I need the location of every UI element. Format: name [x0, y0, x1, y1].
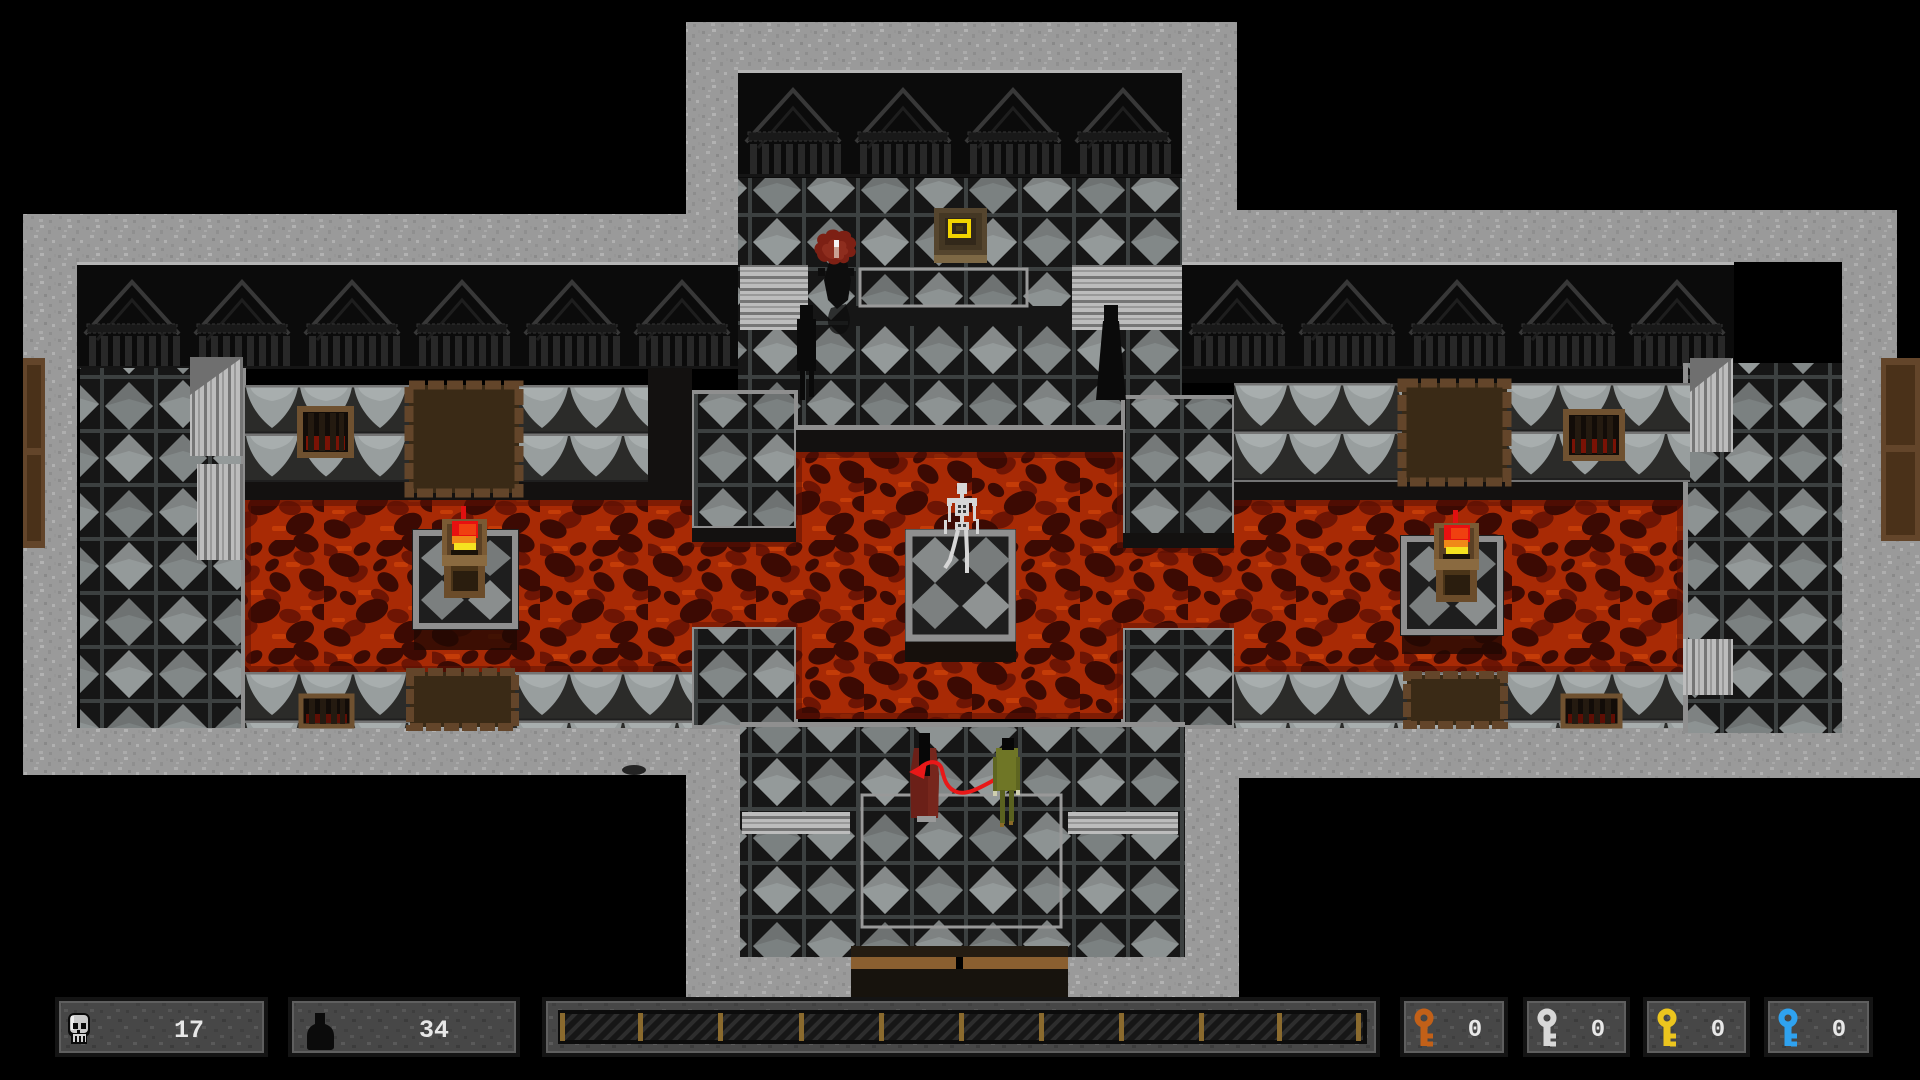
svg-text:0: 0 — [1468, 1017, 1482, 1044]
svg-text:34: 34 — [419, 1016, 449, 1045]
svg-text:17: 17 — [174, 1016, 204, 1045]
svg-text:0: 0 — [1711, 1017, 1725, 1044]
svg-text:0: 0 — [1591, 1017, 1605, 1044]
svg-text:0: 0 — [1832, 1017, 1846, 1044]
